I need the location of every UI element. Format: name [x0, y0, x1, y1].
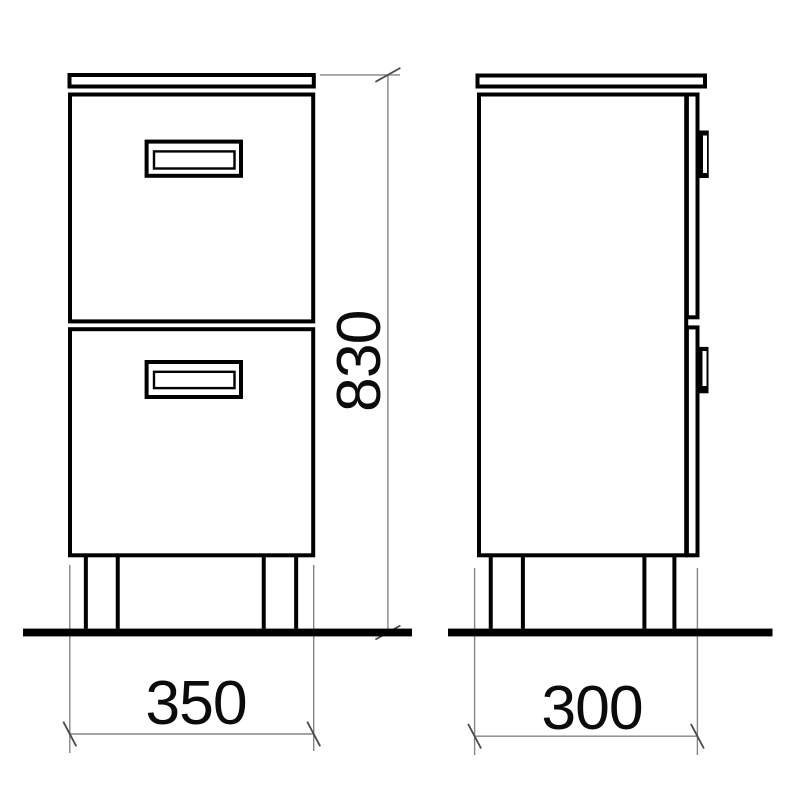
svg-text:830: 830 [324, 311, 394, 412]
svg-text:300: 300 [541, 673, 642, 743]
svg-text:350: 350 [145, 668, 246, 738]
